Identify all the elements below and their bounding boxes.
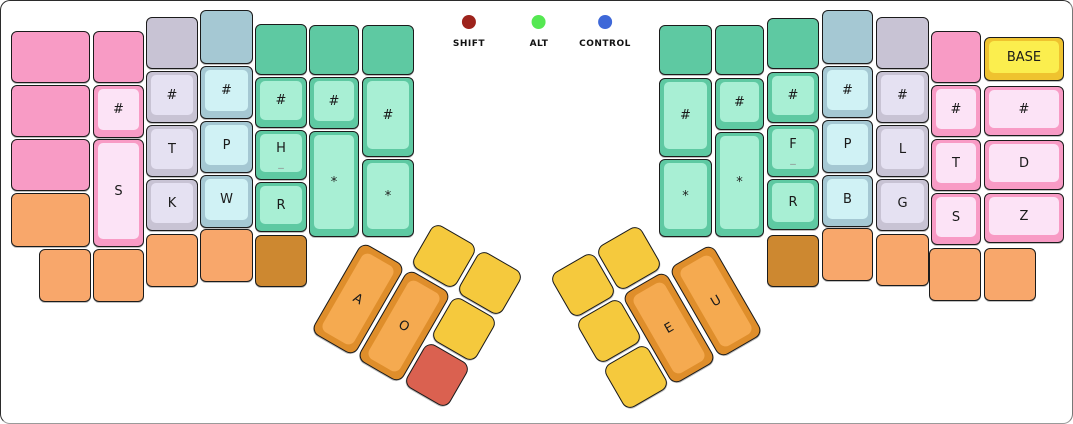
key-legend: *: [720, 136, 759, 229]
key-legend: P: [827, 124, 868, 165]
key-hash[interactable]: #: [309, 77, 359, 129]
key-blank-orange[interactable]: [93, 249, 144, 302]
key-p[interactable]: P: [822, 120, 873, 173]
key-blank-green[interactable]: [255, 24, 307, 75]
shift-indicator-label: SHIFT: [453, 39, 485, 49]
key-legend: F_: [772, 129, 814, 169]
key-hash[interactable]: #: [200, 66, 253, 119]
key-blank-orange[interactable]: [929, 248, 981, 301]
key-legend: #: [314, 81, 354, 121]
key-legend: D: [989, 144, 1059, 182]
key-legend: T: [936, 143, 976, 183]
key-legend: *: [664, 163, 707, 229]
key-legend: H_: [260, 134, 302, 172]
key-hash[interactable]: #: [767, 72, 819, 123]
key-legend: #: [772, 76, 814, 115]
key-legend: #: [989, 90, 1059, 128]
key-blank-orange[interactable]: [39, 249, 91, 302]
key-k[interactable]: K: [146, 179, 198, 231]
key-blank-pink[interactable]: [11, 85, 90, 137]
key-t[interactable]: T: [931, 139, 981, 191]
key-legend: R: [772, 183, 814, 222]
key-star[interactable]: *: [309, 131, 359, 237]
key-star[interactable]: *: [659, 159, 712, 237]
key-legend: *: [367, 163, 409, 229]
key-legend: L: [881, 129, 924, 169]
key-legend: #: [936, 89, 976, 129]
control-indicator-label: CONTROL: [579, 39, 631, 49]
key-hash[interactable]: #: [984, 86, 1064, 136]
key-legend: Z: [989, 197, 1059, 235]
key-legend: W: [205, 179, 248, 220]
key-hash[interactable]: #: [146, 71, 198, 123]
key-t[interactable]: T: [146, 125, 198, 177]
key-f[interactable]: F_: [767, 125, 819, 177]
key-legend: #: [151, 75, 193, 115]
key-legend: G: [881, 183, 924, 223]
key-legend: B: [827, 179, 868, 219]
indicator-shift: SHIFT: [453, 15, 485, 49]
key-blank-orange[interactable]: [876, 234, 929, 286]
key-blank-dorange[interactable]: [767, 235, 819, 287]
key-legend: *: [314, 135, 354, 229]
indicator-control: CONTROL: [579, 15, 631, 49]
key-blank-green[interactable]: [309, 25, 359, 75]
key-blank-orange[interactable]: [822, 228, 873, 281]
key-hash[interactable]: #: [93, 85, 144, 138]
key-blank-orange[interactable]: [11, 193, 90, 247]
key-legend: BASE: [989, 41, 1059, 73]
shift-indicator-dot: [462, 15, 476, 29]
key-g[interactable]: G: [876, 179, 929, 231]
key-blank-pink[interactable]: [11, 139, 90, 191]
key-hash[interactable]: #: [362, 77, 414, 157]
key-legend: K: [151, 183, 193, 223]
key-hash[interactable]: #: [876, 71, 929, 123]
key-h[interactable]: H_: [255, 130, 307, 180]
key-legend: T: [151, 129, 193, 169]
key-blank-green[interactable]: [659, 25, 712, 75]
key-hash[interactable]: #: [931, 85, 981, 137]
key-star[interactable]: *: [362, 159, 414, 237]
key-blank-green[interactable]: [715, 25, 764, 75]
alt-indicator-label: ALT: [530, 39, 549, 49]
key-star[interactable]: *: [715, 132, 764, 237]
key-blank-orange[interactable]: [200, 229, 253, 282]
keyboard-layout-canvas: SHIFT ALT CONTROL #S#TK#PW#H_R#*#*AOEU#*…: [0, 0, 1073, 424]
key-legend: #: [664, 82, 707, 149]
key-legend: #: [720, 82, 759, 122]
alt-indicator-dot: [532, 15, 546, 29]
key-l[interactable]: L: [876, 125, 929, 177]
key-w[interactable]: W: [200, 175, 253, 228]
key-blank-pink[interactable]: [931, 31, 981, 83]
key-blank-gray[interactable]: [876, 17, 929, 69]
key-hash[interactable]: #: [659, 78, 712, 157]
key-blank-green[interactable]: [767, 18, 819, 69]
key-hash[interactable]: #: [715, 78, 764, 130]
key-legend: P: [205, 125, 248, 165]
key-blank-pink[interactable]: [93, 31, 144, 83]
key-blank-pink[interactable]: [11, 31, 90, 83]
key-hash[interactable]: #: [822, 66, 873, 118]
key-s[interactable]: S: [93, 139, 144, 247]
key-legend: #: [205, 70, 248, 111]
key-legend: #: [881, 75, 924, 115]
key-blank-dorange[interactable]: [255, 235, 307, 287]
key-r[interactable]: R: [255, 182, 307, 232]
key-blank-orange[interactable]: [146, 234, 198, 287]
key-legend: S: [98, 143, 139, 239]
key-d[interactable]: D: [984, 140, 1064, 190]
key-blank-gray[interactable]: [146, 17, 198, 69]
key-blank-blue[interactable]: [822, 10, 873, 64]
key-blank-blue[interactable]: [200, 10, 253, 64]
key-s[interactable]: S: [931, 193, 981, 245]
key-legend: #: [367, 81, 409, 149]
key-z[interactable]: Z: [984, 193, 1064, 243]
indicator-alt: ALT: [530, 15, 549, 49]
key-blank-green[interactable]: [362, 25, 414, 75]
key-blank-orange[interactable]: [984, 248, 1036, 301]
key-legend: #: [260, 81, 302, 120]
key-b[interactable]: B: [822, 175, 873, 227]
key-legend: #: [98, 89, 139, 130]
key-legend: R: [260, 186, 302, 224]
key-p[interactable]: P: [200, 121, 253, 173]
key-legend: #: [827, 70, 868, 110]
control-indicator-dot: [598, 15, 612, 29]
key-legend: S: [936, 197, 976, 237]
key-base[interactable]: BASE: [984, 37, 1064, 81]
key-r[interactable]: R: [767, 179, 819, 230]
key-hash[interactable]: #: [255, 77, 307, 128]
